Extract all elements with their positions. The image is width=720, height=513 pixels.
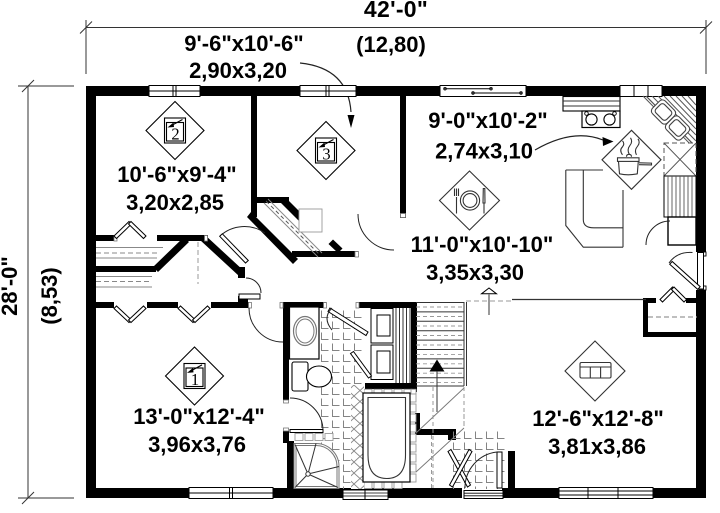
svg-text:9'-6"x10'-6": 9'-6"x10'-6" xyxy=(184,31,303,56)
svg-text:3,20x2,85: 3,20x2,85 xyxy=(126,190,224,215)
svg-text:11'-0"x10'-10": 11'-0"x10'-10" xyxy=(411,232,554,257)
svg-text:28'-0": 28'-0" xyxy=(0,256,22,316)
svg-text:2,90x3,20: 2,90x3,20 xyxy=(189,58,287,83)
svg-text:3,81x3,86: 3,81x3,86 xyxy=(548,434,646,459)
svg-text:42'-0": 42'-0" xyxy=(364,0,428,22)
svg-text:3: 3 xyxy=(322,145,330,164)
svg-text:2: 2 xyxy=(171,125,179,144)
svg-text:10'-6"x9'-4": 10'-6"x9'-4" xyxy=(117,162,236,187)
svg-text:(12,80): (12,80) xyxy=(356,32,426,57)
svg-text:1: 1 xyxy=(191,370,199,389)
svg-text:13'-0"x12'-4": 13'-0"x12'-4" xyxy=(133,404,265,429)
svg-text:(8,53): (8,53) xyxy=(37,267,62,324)
svg-text:12'-6"x12'-8": 12'-6"x12'-8" xyxy=(532,406,664,431)
svg-text:2,74x3,10: 2,74x3,10 xyxy=(435,139,533,164)
svg-text:3,35x3,30: 3,35x3,30 xyxy=(426,260,524,285)
svg-text:3,96x3,76: 3,96x3,76 xyxy=(148,432,246,457)
svg-text:9'-0"x10'-2": 9'-0"x10'-2" xyxy=(428,108,547,133)
